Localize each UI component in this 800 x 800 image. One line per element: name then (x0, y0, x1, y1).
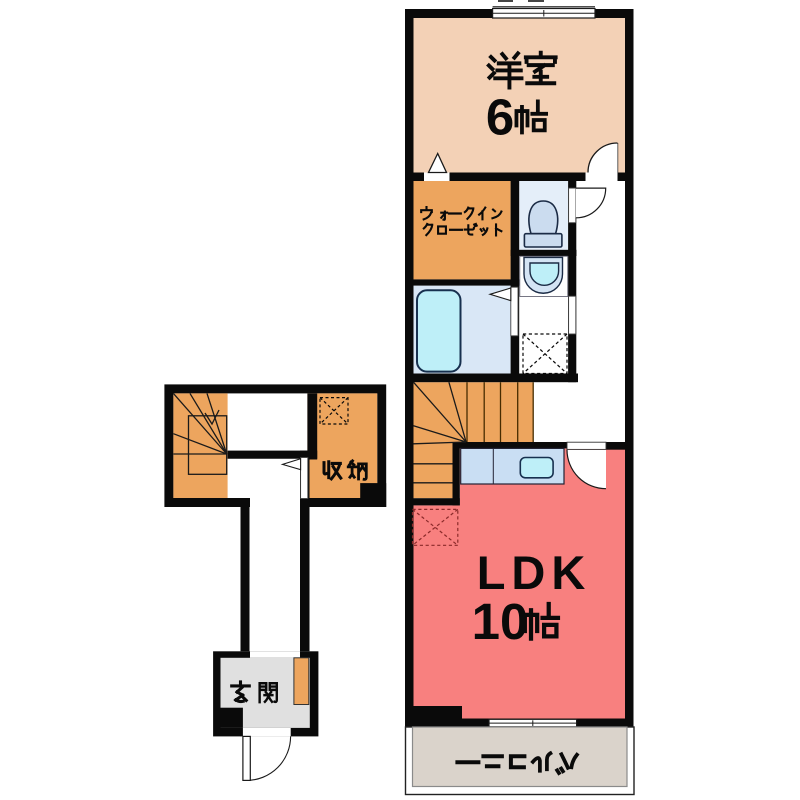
svg-text:10: 10 (472, 593, 529, 650)
svg-text:6: 6 (486, 89, 514, 146)
svg-text:LDK: LDK (477, 546, 592, 599)
